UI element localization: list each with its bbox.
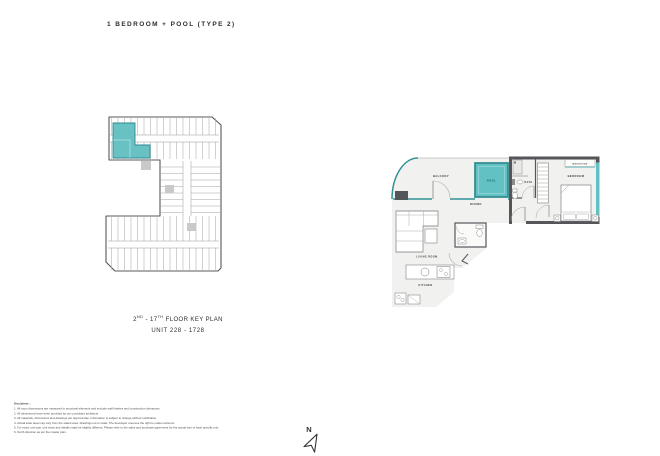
page-title: 1 BEDROOM + POOL (TYPE 2) (107, 21, 236, 28)
toilet-tank (476, 225, 483, 229)
nightstand (592, 215, 599, 222)
key-plan-drawing (85, 95, 245, 285)
north-arrow: N (293, 419, 329, 456)
kitchen-label: KITCHEN (419, 284, 433, 287)
floor-plan-sheet: 1 BEDROOM + POOL (TYPE 2) (0, 0, 660, 456)
key-plan-caption: 2ND - 17TH FLOOR KEY PLAN UNIT 228 - 172… (93, 314, 263, 334)
toilet-bowl (513, 192, 518, 199)
unit-plan-drawing: BALCONY POOL BATH BEDROOM WARDROBE DININ… (378, 135, 613, 310)
pillow (564, 214, 576, 220)
living-room-label: LIVING ROOM (416, 256, 437, 259)
bath-label: BATH (524, 181, 532, 184)
key-plan-corridor-bottom (108, 241, 219, 248)
disclaimer-heading: Disclaimer : (14, 402, 334, 407)
stove (437, 267, 450, 278)
key-plan-core (187, 223, 196, 231)
dining-label: DINING (470, 202, 482, 206)
nightstand (554, 215, 561, 222)
disclaimer-line: 6. North direction as per the master pla… (14, 431, 334, 436)
wall-top (509, 157, 600, 160)
balcony-label: BALCONY (433, 174, 449, 178)
north-needle (304, 431, 322, 452)
pool-label: POOL (487, 179, 496, 183)
bath-sink (517, 180, 523, 184)
wall-pier (395, 191, 408, 200)
caption-text: - 17 (143, 317, 157, 323)
coffee-table (425, 229, 437, 243)
north-label: N (306, 425, 311, 434)
wall-corner (596, 158, 600, 163)
wall-bath-left (509, 158, 512, 224)
key-plan-core (165, 185, 174, 193)
toilet-tank (513, 189, 518, 192)
key-plan-caption-units: UNIT 228 - 1728 (93, 328, 263, 334)
toilet-bowl (477, 230, 483, 237)
pillow (577, 214, 589, 220)
key-plan-caption-floors: 2ND - 17TH FLOOR KEY PLAN (93, 314, 263, 323)
powder-sink-counter (458, 238, 466, 244)
bath-counter (512, 179, 515, 185)
kitchen-cabinet (395, 293, 406, 304)
caption-text: FLOOR KEY PLAN (164, 317, 223, 323)
bedroom-label: BEDROOM (568, 174, 585, 178)
shower-head (514, 161, 516, 163)
kitchen-sink (421, 268, 429, 276)
bedroom-window-strip (596, 158, 600, 223)
disclaimer: Disclaimer : 1. All room dimensions are … (14, 402, 334, 435)
wall-bedroom-bottom (526, 221, 600, 224)
key-plan-core (141, 161, 151, 170)
key-plan-corridor-right (183, 161, 191, 216)
